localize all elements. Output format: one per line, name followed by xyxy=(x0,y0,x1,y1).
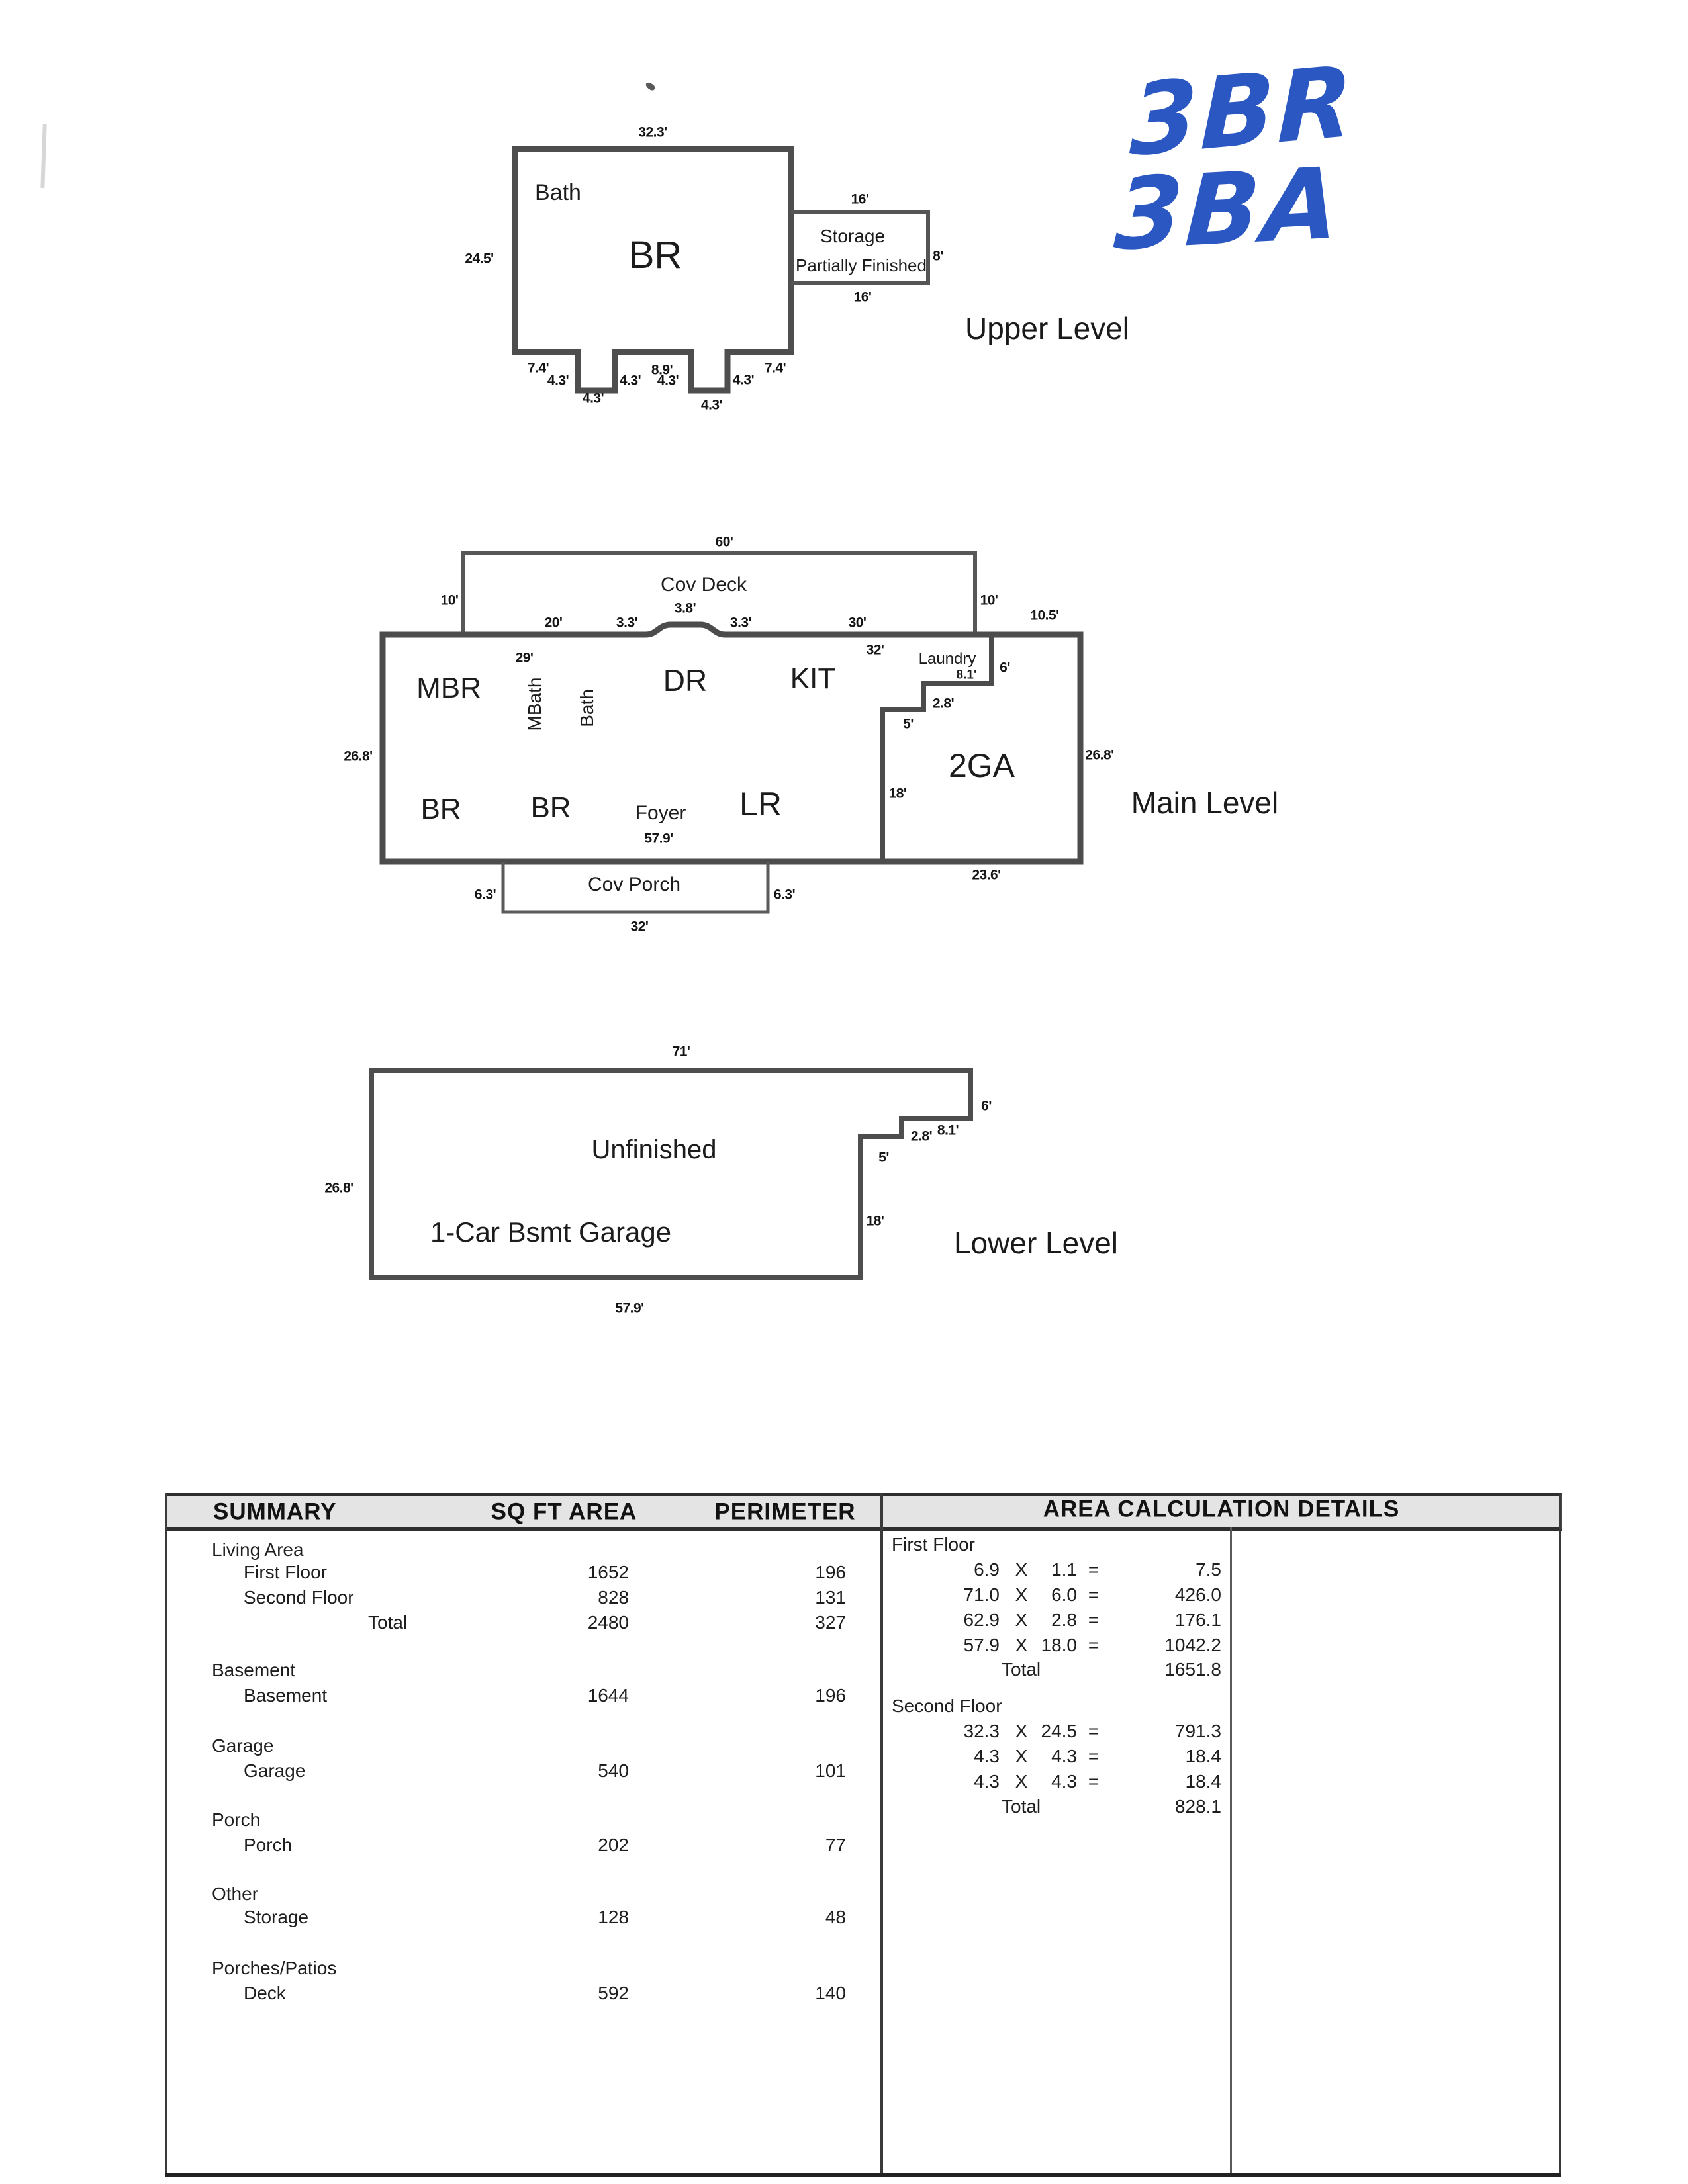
room-label-storage-note: Partially Finished xyxy=(796,257,927,274)
calc-op: X xyxy=(1015,1747,1028,1766)
row-perimeter: 196 xyxy=(815,1563,846,1582)
row-sqft: 128 xyxy=(598,1908,629,1927)
calc-a: 32.3 xyxy=(964,1722,1000,1741)
calc-op: X xyxy=(1015,1586,1028,1604)
room-label-lr: LR xyxy=(739,788,782,821)
details-section-name: First Floor xyxy=(892,1535,975,1554)
room-label-mbath: MBath xyxy=(526,678,544,731)
dim-lower-bottom: 57.9' xyxy=(615,1302,643,1316)
total-label: Total xyxy=(368,1614,407,1632)
lower-level-title: Lower Level xyxy=(954,1228,1118,1258)
row-label: Basement xyxy=(244,1686,327,1705)
main-level-title: Main Level xyxy=(1131,788,1278,818)
calc-op: X xyxy=(1015,1636,1028,1655)
calc-a: 71.0 xyxy=(964,1586,1000,1604)
calc-a: 57.9 xyxy=(964,1636,1000,1655)
row-perimeter: 101 xyxy=(815,1762,846,1780)
total-sqft: 2480 xyxy=(588,1614,629,1632)
dim-laundry-6: 6' xyxy=(1000,661,1010,675)
total-perimeter: 327 xyxy=(815,1614,846,1632)
table-header-summary: SUMMARY xyxy=(213,1500,337,1524)
row-label: Porch xyxy=(244,1836,292,1854)
calc-op: X xyxy=(1015,1772,1028,1791)
dim-laundry-5: 5' xyxy=(903,717,914,731)
room-label-mbr: MBR xyxy=(416,674,481,703)
row-perimeter: 196 xyxy=(815,1686,846,1705)
calc-b: 24.5 xyxy=(1041,1722,1078,1741)
room-label-br-upper: BR xyxy=(629,236,682,275)
table-border-left xyxy=(165,1493,167,2176)
calc-b: 4.3 xyxy=(1051,1747,1077,1766)
calc-result: 1042.2 xyxy=(1164,1636,1221,1655)
calc-eq: = xyxy=(1088,1747,1099,1766)
row-sqft: 1652 xyxy=(588,1563,629,1582)
row-sqft: 828 xyxy=(598,1588,629,1607)
dim-upper-notch43: 4.3' xyxy=(733,373,754,387)
row-label: Garage xyxy=(244,1762,305,1780)
room-label-foyer: Foyer xyxy=(635,803,686,823)
dim-garage-top: 10.5' xyxy=(1030,609,1058,623)
dim-storage-bottom: 16' xyxy=(854,291,872,304)
dim-main-int29: 29' xyxy=(516,651,534,665)
calc-b: 2.8 xyxy=(1051,1611,1077,1629)
calc-eq: = xyxy=(1088,1586,1099,1604)
room-label-kit: KIT xyxy=(790,664,835,694)
table-border-right xyxy=(1559,1493,1561,2176)
dim-lower-height: 26.8' xyxy=(324,1181,353,1195)
calc-a: 6.9 xyxy=(974,1561,1000,1579)
group-name: Porch xyxy=(212,1811,260,1829)
dim-deck-height-right: 10' xyxy=(980,594,998,608)
details-section-name: Second Floor xyxy=(892,1697,1002,1715)
dim-main-int32: 32' xyxy=(867,643,884,657)
dim-upper-notch43: 4.3' xyxy=(620,374,641,388)
calc-b: 6.0 xyxy=(1051,1586,1077,1604)
calc-op: X xyxy=(1015,1722,1028,1741)
table-header-sqft: SQ FT AREA xyxy=(491,1500,637,1524)
calc-total-label: Total xyxy=(1002,1661,1041,1679)
calc-b: 4.3 xyxy=(1051,1772,1077,1791)
dim-porch-width: 32' xyxy=(631,920,649,934)
dim-lower-81: 8.1' xyxy=(937,1124,959,1138)
row-sqft: 202 xyxy=(598,1836,629,1854)
row-label: Second Floor xyxy=(244,1588,354,1607)
calc-total: 1651.8 xyxy=(1164,1661,1221,1679)
room-label-dr: DR xyxy=(663,665,707,696)
dim-main-seg38: 3.8' xyxy=(675,602,696,615)
dim-lower-28: 2.8' xyxy=(911,1130,932,1144)
table-header-details: AREA CALCULATION DETAILS xyxy=(1043,1498,1400,1521)
dim-upper-notch43: 4.3' xyxy=(583,392,604,406)
row-perimeter: 131 xyxy=(815,1588,846,1607)
dim-upper-seg74-left: 7.4' xyxy=(528,361,549,375)
calc-result: 176.1 xyxy=(1175,1611,1221,1629)
room-label-cov-deck: Cov Deck xyxy=(661,575,747,595)
dim-main-seg33-right: 3.3' xyxy=(730,616,751,630)
dim-upper-notch43: 4.3' xyxy=(547,374,569,388)
dim-lower-6: 6' xyxy=(981,1099,992,1113)
calc-eq: = xyxy=(1088,1611,1099,1629)
room-label-cov-porch: Cov Porch xyxy=(588,875,680,895)
dim-lower-18: 18' xyxy=(867,1214,884,1228)
dim-storage-right: 8' xyxy=(933,250,943,263)
dim-lower-5: 5' xyxy=(878,1151,889,1165)
calc-total: 828.1 xyxy=(1175,1797,1221,1816)
dim-upper-width: 32.3' xyxy=(638,126,667,140)
upper-level-title: Upper Level xyxy=(965,313,1129,343)
row-sqft: 592 xyxy=(598,1984,629,2003)
calc-eq: = xyxy=(1088,1561,1099,1579)
dim-upper-seg74-right: 7.4' xyxy=(765,361,786,375)
calc-eq: = xyxy=(1088,1772,1099,1791)
calc-result: 18.4 xyxy=(1186,1747,1222,1766)
dim-lower-width: 71' xyxy=(673,1045,690,1059)
dim-upper-notch43: 4.3' xyxy=(657,374,679,388)
group-name: Porches/Patios xyxy=(212,1959,336,1978)
calc-eq: = xyxy=(1088,1636,1099,1655)
table-divider-details xyxy=(1230,1527,1232,2176)
table-header-perimeter: PERIMETER xyxy=(714,1500,855,1524)
calc-op: X xyxy=(1015,1561,1028,1579)
dim-storage-top: 16' xyxy=(851,193,869,206)
table-border-bottom xyxy=(165,2173,1561,2177)
calc-eq: = xyxy=(1088,1722,1099,1741)
dim-laundry-28: 2.8' xyxy=(933,697,954,711)
dim-garage-width: 23.6' xyxy=(972,868,1000,882)
dim-porch-63-left: 6.3' xyxy=(475,888,496,902)
room-label-bath-main: Bath xyxy=(578,689,596,727)
calc-a: 4.3 xyxy=(974,1772,1000,1791)
dim-main-bottom579: 57.9' xyxy=(644,832,673,846)
row-label: Deck xyxy=(244,1984,286,2003)
row-sqft: 540 xyxy=(598,1762,629,1780)
floorplan-drawing xyxy=(0,0,1688,2184)
scanned-appraisal-sketch-page: 3BR 3BA 32.3' Bath BR 24.5' 16' Storage … xyxy=(0,0,1688,2184)
room-label-br-main-1: BR xyxy=(420,795,461,824)
dim-main-seg30: 30' xyxy=(849,616,867,630)
dim-laundry-81: 8.1' xyxy=(957,669,977,682)
calc-result: 426.0 xyxy=(1175,1586,1221,1604)
calc-result: 791.3 xyxy=(1175,1722,1221,1741)
row-perimeter: 48 xyxy=(825,1908,846,1927)
room-label-unfinished: Unfinished xyxy=(591,1136,716,1163)
room-label-2ga: 2GA xyxy=(949,749,1015,782)
calc-a: 4.3 xyxy=(974,1747,1000,1766)
dim-garage-18: 18' xyxy=(889,787,907,801)
dim-porch-63-right: 6.3' xyxy=(774,888,795,902)
calc-b: 1.1 xyxy=(1051,1561,1077,1579)
group-name: Garage xyxy=(212,1737,273,1755)
group-name: Other xyxy=(212,1885,258,1903)
dim-deck-height-left: 10' xyxy=(441,594,459,608)
row-perimeter: 77 xyxy=(825,1836,846,1854)
handwritten-bathroom-count: 3BA xyxy=(1112,154,1344,265)
row-label: First Floor xyxy=(244,1563,327,1582)
calc-result: 7.5 xyxy=(1196,1561,1221,1579)
dim-upper-height: 24.5' xyxy=(465,252,493,266)
dim-main-height-left: 26.8' xyxy=(344,750,372,764)
dim-upper-notch43: 4.3' xyxy=(701,398,722,412)
dim-main-height-right: 26.8' xyxy=(1085,749,1113,762)
room-label-laundry: Laundry xyxy=(919,651,976,667)
dim-main-seg33-left: 3.3' xyxy=(616,616,637,630)
dim-deck-width: 60' xyxy=(716,535,733,549)
calc-a: 62.9 xyxy=(964,1611,1000,1629)
calc-result: 18.4 xyxy=(1186,1772,1222,1791)
room-label-bath-upper: Bath xyxy=(535,181,581,204)
group-name: Living Area xyxy=(212,1541,304,1559)
row-perimeter: 140 xyxy=(815,1984,846,2003)
room-label-storage: Storage xyxy=(820,227,885,246)
dim-main-seg20: 20' xyxy=(545,616,563,630)
row-sqft: 1644 xyxy=(588,1686,629,1705)
room-label-br-main-2: BR xyxy=(530,794,571,823)
row-label: Storage xyxy=(244,1908,308,1927)
calc-op: X xyxy=(1015,1611,1028,1629)
room-label-bsmt-garage: 1-Car Bsmt Garage xyxy=(430,1218,671,1246)
calc-b: 18.0 xyxy=(1041,1636,1078,1655)
calc-total-label: Total xyxy=(1002,1797,1041,1816)
group-name: Basement xyxy=(212,1661,295,1680)
table-divider-main xyxy=(880,1493,883,2176)
